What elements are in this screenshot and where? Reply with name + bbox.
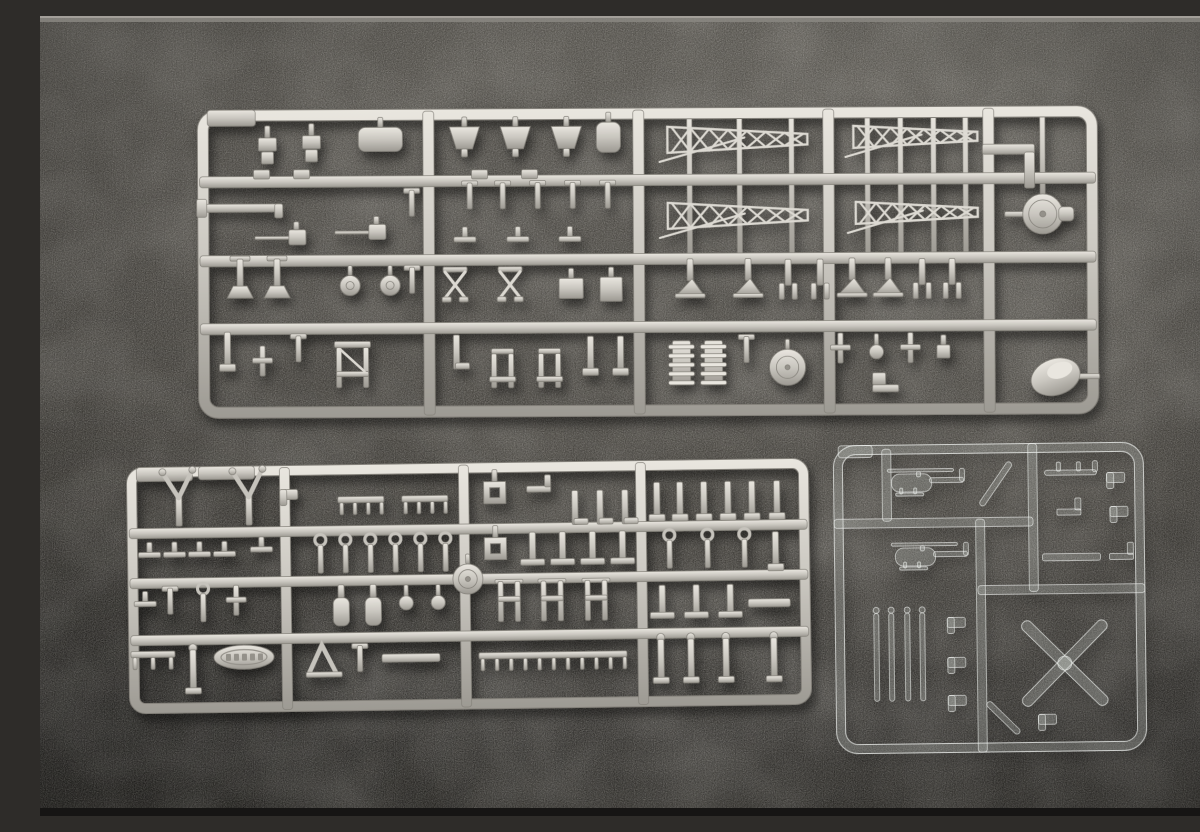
sprue-gate-tab	[207, 110, 255, 126]
part-coil	[668, 341, 694, 385]
part-foot	[522, 170, 538, 179]
photo-bottom-edge	[40, 808, 1200, 816]
part-foot	[472, 170, 488, 179]
part-bar	[382, 653, 440, 662]
photo-canvas	[40, 16, 1200, 816]
sprue-runner-horizontal	[978, 584, 1145, 595]
photo-of-model-sprues	[40, 16, 1200, 816]
part-coil	[700, 341, 726, 385]
part-bar	[1042, 553, 1100, 561]
photo-top-edge-highlight	[40, 16, 1200, 18]
part-bar	[748, 599, 790, 608]
sprue-gate-tab	[198, 466, 254, 480]
part-foot	[294, 170, 310, 179]
sprue-gate-tab	[838, 445, 872, 457]
part-boat	[214, 645, 274, 670]
sprue-runner-vertical	[882, 449, 892, 521]
sprue-rod	[1040, 112, 1045, 198]
part-foot	[254, 170, 270, 179]
